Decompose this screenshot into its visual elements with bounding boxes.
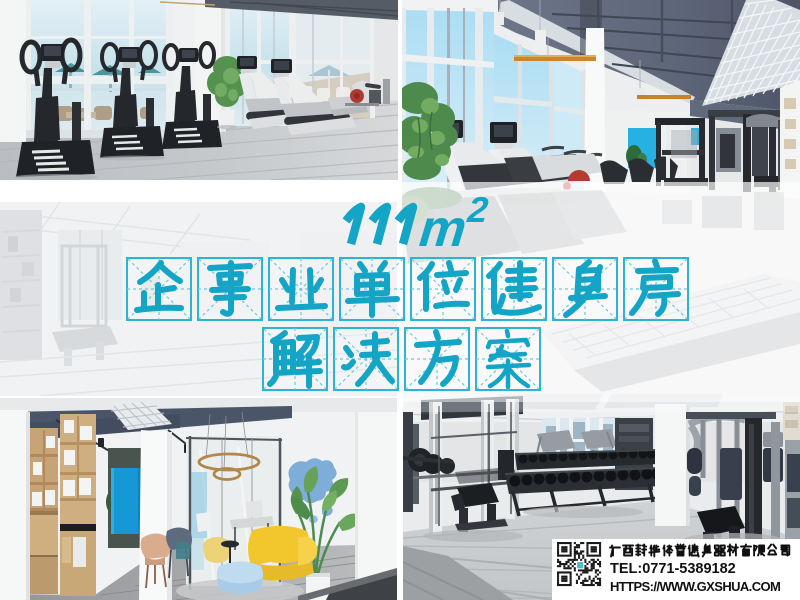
svg-text:TEL:0771-5389182: TEL:0771-5389182 — [610, 561, 736, 577]
svg-text:HTTPS://WWW.GXSHUA.COM: HTTPS://WWW.GXSHUA.COM — [610, 579, 780, 594]
svg-text:m: m — [417, 200, 469, 258]
svg-text:2: 2 — [465, 189, 490, 230]
